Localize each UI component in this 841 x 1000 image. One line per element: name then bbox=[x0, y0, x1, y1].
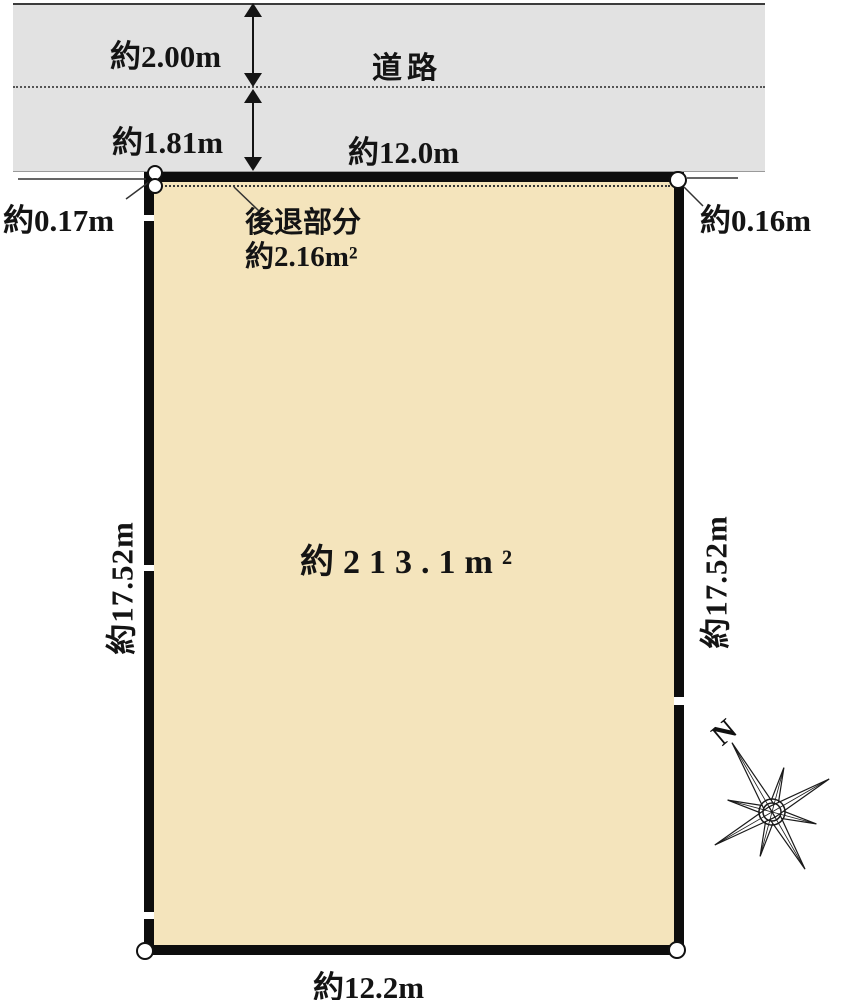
survey-point-bottom-right bbox=[669, 942, 685, 958]
survey-point-top-left-b bbox=[148, 179, 162, 193]
leader-setback bbox=[234, 187, 259, 211]
survey-point-bottom-left bbox=[137, 943, 153, 959]
land-plot-diagram: 約2.00m 約1.81m 道路 約12.0m 約0.17m 約0.16m 後退… bbox=[0, 0, 841, 1000]
leader-offset-left bbox=[126, 182, 149, 199]
dimension-arrow-lower bbox=[244, 89, 262, 171]
survey-point-top-right bbox=[670, 172, 686, 188]
compass-star bbox=[688, 710, 841, 897]
compass-rose: N bbox=[688, 702, 841, 897]
survey-point-top-left-a bbox=[148, 166, 162, 180]
leader-offset-right bbox=[684, 187, 703, 206]
dimension-arrow-upper bbox=[244, 3, 262, 87]
compass-north-letter: N bbox=[705, 713, 743, 752]
